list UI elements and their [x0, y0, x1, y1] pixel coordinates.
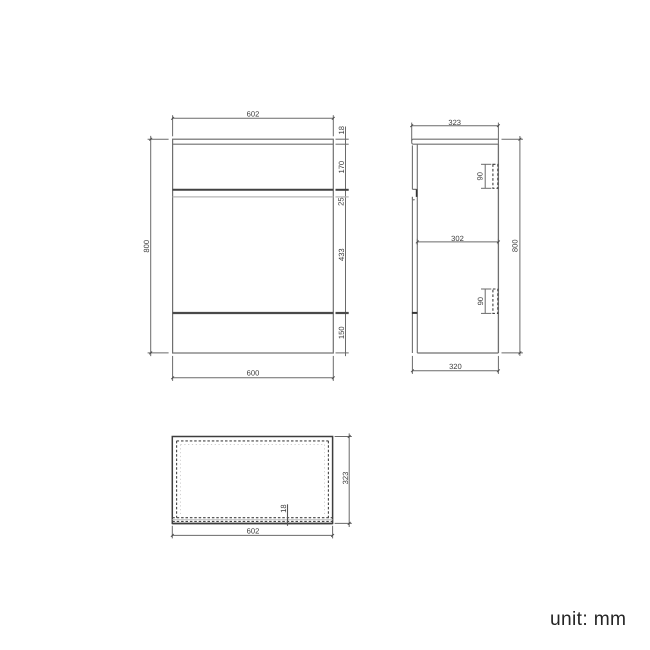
- svg-text:602: 602: [247, 526, 260, 535]
- svg-text:18: 18: [279, 504, 288, 512]
- svg-text:602: 602: [247, 109, 260, 118]
- svg-text:18: 18: [337, 126, 346, 134]
- svg-text:323: 323: [448, 118, 461, 127]
- svg-text:433: 433: [337, 248, 346, 261]
- svg-text:150: 150: [337, 326, 346, 339]
- svg-text:302: 302: [451, 234, 464, 243]
- svg-text:323: 323: [341, 472, 350, 485]
- svg-text:600: 600: [247, 369, 260, 378]
- svg-text:800: 800: [142, 240, 151, 253]
- svg-text:90: 90: [476, 297, 485, 305]
- svg-text:25: 25: [337, 197, 346, 205]
- svg-text:320: 320: [449, 362, 462, 371]
- svg-text:90: 90: [476, 172, 485, 180]
- svg-text:170: 170: [337, 161, 346, 174]
- svg-text:800: 800: [510, 239, 519, 252]
